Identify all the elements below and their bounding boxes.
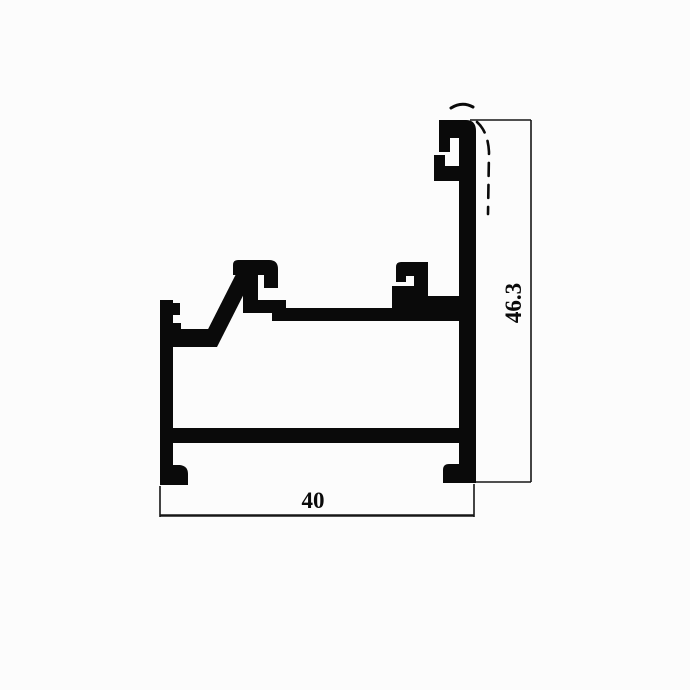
width-dimension-label: 40	[302, 488, 325, 513]
web-right-surface	[414, 296, 460, 321]
top-hook-lower	[434, 155, 462, 181]
left-wall	[160, 300, 173, 485]
height-dimension-label: 46.3	[501, 283, 526, 323]
drawing-canvas: 40 46.3	[0, 0, 690, 690]
profile-body	[160, 120, 476, 485]
top-hook-upper	[439, 120, 462, 152]
bottom-right-foot	[443, 464, 476, 483]
left-wall-nib	[173, 303, 180, 315]
profile-technical-drawing: 40 46.3	[0, 0, 690, 690]
web-step	[392, 286, 414, 312]
bottom-web	[160, 428, 476, 443]
left-foot	[160, 465, 188, 485]
gasket-dashed-curve	[477, 122, 489, 214]
gasket-arc-dash	[451, 104, 473, 108]
